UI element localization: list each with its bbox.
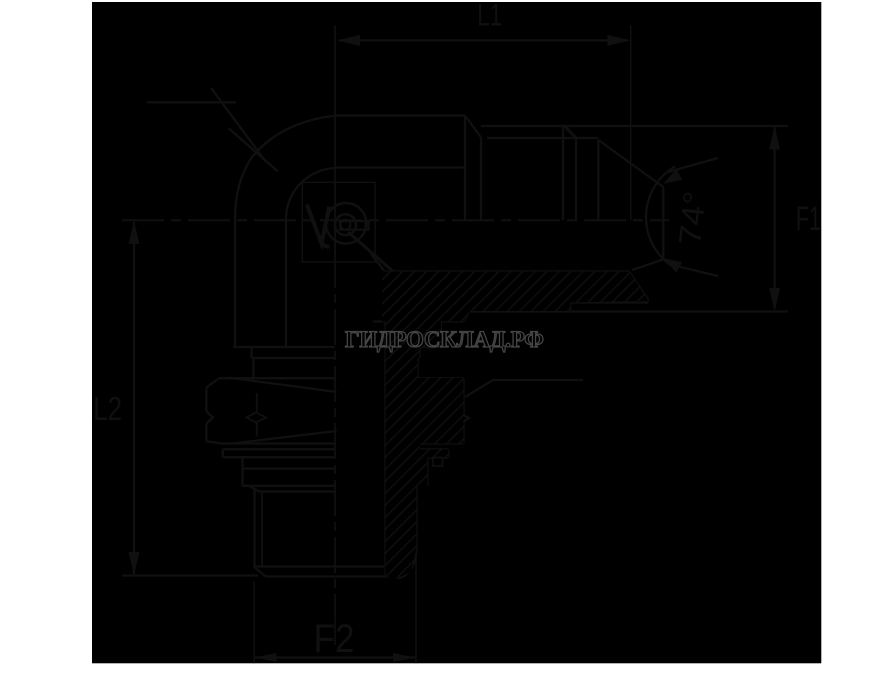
svg-text:F1: F1 (796, 200, 821, 238)
svg-text:ГИДРОСКЛАД.РФ: ГИДРОСКЛАД.РФ (345, 327, 544, 352)
svg-text:L1: L1 (477, 0, 502, 33)
svg-text:74°: 74° (672, 189, 712, 246)
svg-text:F2: F2 (314, 617, 355, 661)
svg-text:L2: L2 (93, 391, 122, 428)
